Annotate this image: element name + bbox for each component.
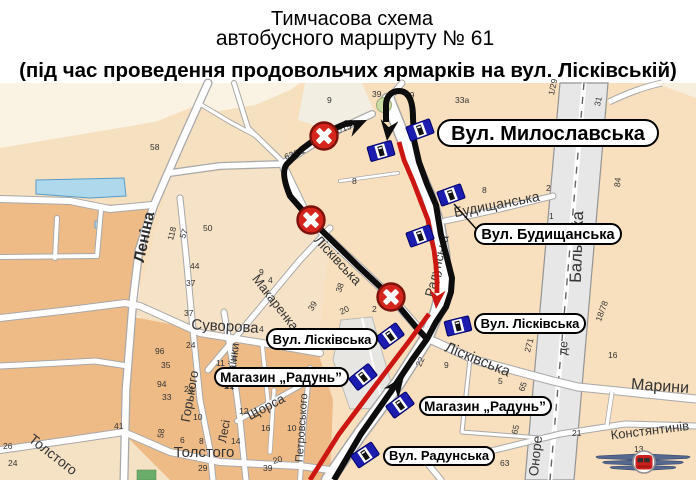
svg-text:14: 14 — [231, 436, 241, 446]
svg-text:37: 37 — [184, 308, 194, 318]
svg-text:8: 8 — [352, 176, 357, 186]
svg-text:24: 24 — [8, 458, 18, 468]
svg-text:16: 16 — [608, 350, 618, 360]
svg-text:9: 9 — [259, 267, 264, 277]
svg-text:44: 44 — [190, 261, 200, 271]
svg-text:9: 9 — [327, 95, 332, 105]
svg-text:39: 39 — [263, 463, 273, 473]
svg-text:2: 2 — [372, 304, 377, 314]
svg-text:2: 2 — [253, 408, 258, 418]
svg-text:63: 63 — [500, 458, 510, 468]
svg-text:8: 8 — [482, 185, 487, 195]
svg-text:11: 11 — [216, 358, 225, 368]
svg-text:94: 94 — [157, 379, 167, 389]
svg-text:Вул. Милославська: Вул. Милославська — [451, 123, 646, 145]
svg-text:Магазин „Радунь”: Магазин „Радунь” — [424, 399, 546, 414]
svg-text:Вул. Лісківська: Вул. Лісківська — [481, 316, 580, 331]
svg-text:Вул. Лісківська: Вул. Лісківська — [273, 332, 372, 347]
svg-text:96: 96 — [155, 346, 165, 356]
svg-text:4: 4 — [268, 275, 273, 285]
svg-text:Магазин „Радунь”: Магазин „Радунь” — [220, 370, 342, 385]
svg-text:Вул. Радунська: Вул. Радунська — [389, 448, 490, 463]
svg-text:1: 1 — [549, 211, 554, 221]
svg-text:58: 58 — [155, 428, 167, 439]
svg-text:84: 84 — [612, 177, 623, 188]
svg-text:10: 10 — [287, 423, 297, 433]
svg-text:4: 4 — [259, 324, 264, 334]
svg-text:50: 50 — [203, 223, 213, 233]
svg-text:24: 24 — [186, 340, 196, 350]
svg-text:10: 10 — [193, 412, 203, 422]
svg-text:16: 16 — [261, 423, 271, 433]
svg-text:9: 9 — [232, 354, 237, 364]
svg-text:21: 21 — [572, 428, 582, 438]
svg-text:24: 24 — [184, 384, 194, 394]
svg-text:Толстого: Толстого — [174, 444, 235, 461]
svg-text:8: 8 — [199, 436, 204, 446]
svg-text:Суворова: Суворова — [191, 316, 260, 337]
svg-text:29: 29 — [198, 463, 208, 473]
svg-text:41: 41 — [114, 421, 124, 431]
svg-text:33а: 33а — [455, 95, 469, 105]
svg-text:Бальзака: Бальзака — [567, 210, 588, 283]
svg-text:де: де — [555, 340, 570, 355]
svg-text:(під час проведення продовольч: (під час проведення продовольчих ярмаркі… — [19, 59, 677, 82]
svg-text:12: 12 — [239, 406, 249, 416]
svg-text:37: 37 — [186, 278, 196, 288]
svg-text:6: 6 — [180, 435, 185, 445]
svg-text:39: 39 — [372, 89, 382, 99]
svg-text:26: 26 — [3, 441, 13, 451]
svg-text:33: 33 — [162, 392, 172, 402]
svg-text:автобусного маршруту № 61: автобусного маршруту № 61 — [216, 27, 494, 50]
svg-text:Вул. Будищанська: Вул. Будищанська — [481, 227, 615, 243]
svg-text:35: 35 — [161, 360, 171, 370]
svg-text:9: 9 — [444, 360, 449, 370]
svg-text:5: 5 — [498, 376, 503, 386]
svg-text:2: 2 — [546, 183, 551, 193]
svg-text:58: 58 — [150, 142, 160, 152]
